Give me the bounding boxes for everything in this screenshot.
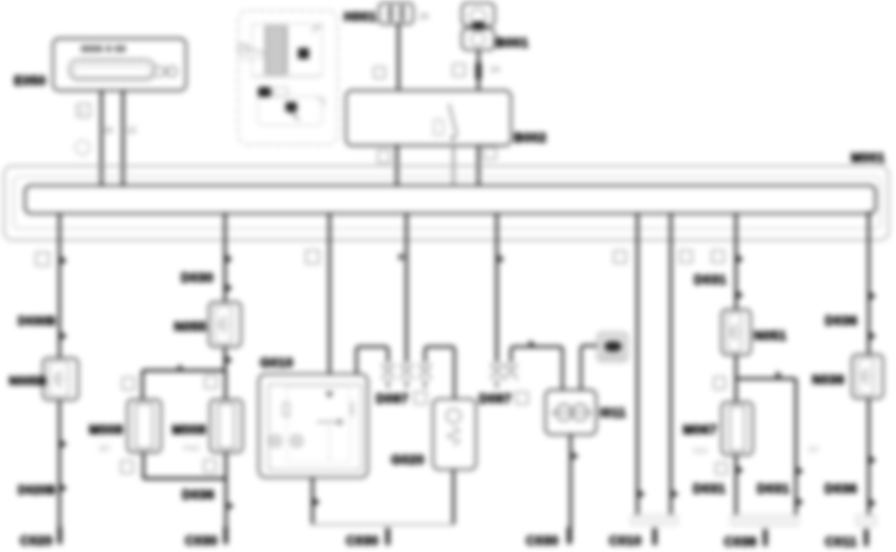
svg-text:D097: D097: [479, 391, 512, 406]
svg-text:D031: D031: [693, 481, 726, 496]
svg-text:(gr): (gr): [808, 446, 819, 453]
svg-text:D031: D031: [757, 481, 790, 496]
svg-text:D020B: D020B: [18, 485, 56, 497]
svg-text:N051: N051: [754, 328, 787, 343]
svg-text:N005B: N005B: [9, 376, 47, 388]
svg-text:G020: G020: [391, 452, 424, 467]
svg-text:(mar): (mar): [183, 445, 200, 452]
svg-text:8: 8: [80, 109, 84, 116]
svg-text:C011: C011: [825, 534, 857, 549]
svg-text:D036: D036: [182, 487, 215, 502]
svg-text:1A: 1A: [490, 65, 500, 74]
svg-text:C020: C020: [20, 533, 53, 548]
svg-text:D036: D036: [825, 313, 858, 328]
svg-text:2A: 2A: [419, 12, 429, 21]
svg-text:I011: I011: [600, 405, 626, 420]
svg-text:M008: M008: [89, 422, 123, 437]
svg-text:C030: C030: [346, 533, 379, 548]
svg-text:E050: E050: [14, 73, 46, 88]
svg-text:D031: D031: [694, 272, 727, 287]
svg-text:B002: B002: [514, 130, 547, 145]
svg-text:N055: N055: [174, 319, 207, 334]
svg-text:C030: C030: [526, 533, 559, 548]
svg-text:(ner): (ner): [693, 448, 708, 455]
svg-text:G010: G010: [260, 355, 293, 370]
svg-text:D036: D036: [825, 481, 858, 496]
svg-text:D030: D030: [181, 270, 214, 285]
svg-text:H001: H001: [344, 9, 377, 24]
svg-text:M067: M067: [683, 422, 717, 437]
svg-text:M001: M001: [851, 150, 885, 165]
svg-text:12: 12: [127, 126, 136, 135]
svg-text:C010: C010: [609, 533, 642, 548]
svg-text:8888 8·88: 8888 8·88: [81, 44, 126, 54]
svg-text:C030: C030: [185, 533, 218, 548]
svg-text:N036: N036: [812, 372, 845, 387]
svg-text:D097: D097: [376, 391, 409, 406]
svg-text:B001: B001: [496, 35, 529, 50]
svg-text:(gr): (gr): [99, 445, 110, 452]
svg-text:D030B: D030B: [18, 316, 56, 328]
svg-text:M008: M008: [172, 422, 206, 437]
svg-text:15: 15: [104, 126, 113, 135]
svg-text:C038: C038: [724, 534, 757, 549]
